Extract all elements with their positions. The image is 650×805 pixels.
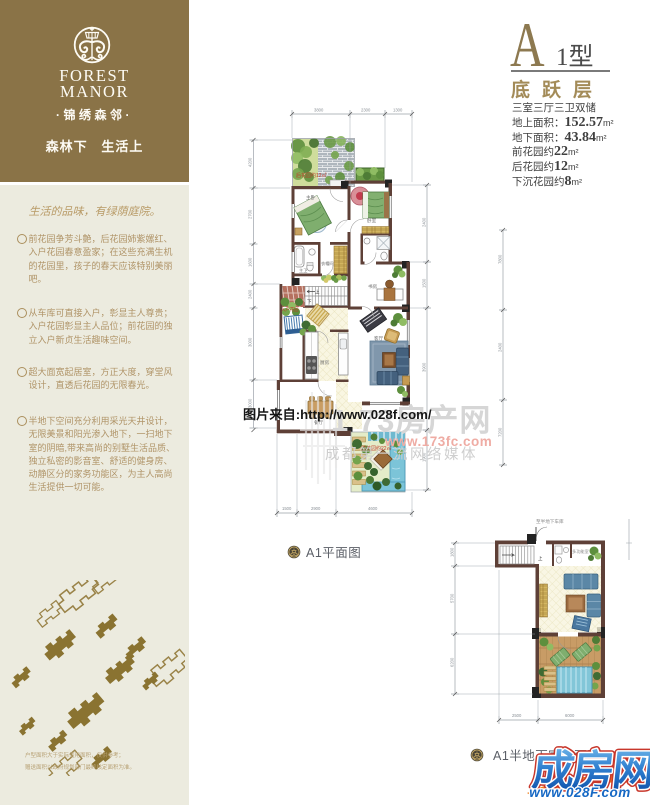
- svg-text:1600: 1600: [248, 257, 253, 267]
- svg-text:2700: 2700: [248, 209, 253, 219]
- svg-text:2500: 2500: [512, 713, 522, 718]
- svg-text:2400: 2400: [422, 217, 427, 227]
- svg-text:5700: 5700: [450, 593, 455, 603]
- svg-text:3900: 3900: [422, 362, 427, 372]
- svg-text:4200: 4200: [248, 157, 253, 167]
- svg-text:2400: 2400: [248, 289, 253, 299]
- svg-text:图片来自:http://www.028f.com/: 图片来自:http://www.028f.com/: [243, 406, 432, 422]
- svg-text:上: 上: [538, 555, 543, 561]
- svg-text:7800: 7800: [498, 254, 503, 264]
- svg-text:1800: 1800: [450, 547, 455, 557]
- svg-text:1500: 1500: [282, 506, 292, 511]
- svg-text:卧室: 卧室: [367, 217, 377, 224]
- svg-text:书房: 书房: [368, 283, 378, 290]
- svg-text:1500: 1500: [422, 278, 427, 288]
- svg-text:2300: 2300: [361, 108, 371, 113]
- svg-text:至半地下车库: 至半地下车库: [536, 518, 564, 525]
- svg-text:www.028F.com: www.028F.com: [529, 785, 631, 800]
- svg-text:主卫: 主卫: [299, 267, 307, 273]
- svg-text:多功能室: 多功能室: [572, 548, 589, 555]
- svg-text:2400: 2400: [498, 342, 503, 352]
- svg-text:6000: 6000: [565, 713, 575, 718]
- svg-text:4600: 4600: [368, 506, 378, 511]
- svg-text:主卧: 主卧: [306, 194, 316, 201]
- svg-text:客厅: 客厅: [374, 335, 384, 342]
- svg-text:后花园约12㎡: 后花园约12㎡: [296, 172, 327, 179]
- svg-text:厨房: 厨房: [320, 359, 330, 366]
- svg-text:入户花园: 入户花园: [281, 306, 299, 313]
- svg-text:6200: 6200: [450, 657, 455, 667]
- svg-text:7200: 7200: [498, 427, 503, 437]
- svg-text:成都第一流网络媒体: 成都第一流网络媒体: [325, 445, 478, 463]
- svg-text:1300: 1300: [393, 108, 403, 113]
- svg-text:衣帽间: 衣帽间: [321, 260, 334, 267]
- svg-text:3000: 3000: [248, 337, 253, 347]
- svg-text:上: 上: [315, 289, 320, 295]
- svg-text:A1平面图: A1平面图: [306, 546, 361, 560]
- svg-text:3800: 3800: [314, 108, 324, 113]
- svg-text:2900: 2900: [311, 506, 321, 511]
